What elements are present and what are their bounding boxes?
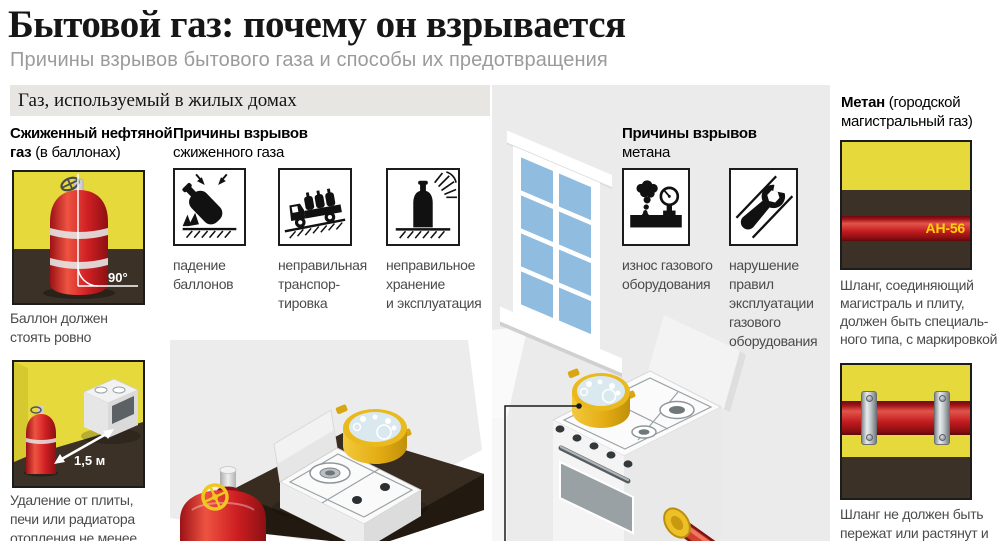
lpg-heading: Сжиженный нефтяной газ (в баллонах) bbox=[10, 124, 172, 162]
screw-icon bbox=[939, 434, 946, 441]
hose-marking-caption: Шланг, соединяющий магистраль и плиту, д… bbox=[840, 276, 997, 348]
lpg-cause-caption-1: падение баллонов bbox=[173, 256, 233, 294]
lpg-cause-caption-3: неправильное хранение и эксплуатация bbox=[386, 256, 481, 313]
boiling-pot-icon bbox=[567, 368, 636, 428]
screw-icon bbox=[866, 434, 873, 441]
caption-line: Баллон должен bbox=[10, 309, 108, 328]
lpg-causes-heading: Причины взрывов сжиженного газа bbox=[173, 124, 308, 162]
caption-line: печи или радиатора bbox=[10, 510, 137, 529]
hose-bracket-icon bbox=[861, 391, 877, 445]
page-subtitle: Причины взрывов бытового газа и способы … bbox=[10, 49, 608, 72]
methane-causes-heading: Причины взрывов метана bbox=[622, 124, 757, 162]
lpg-cause-caption-2: неправильная транспор- тировка bbox=[278, 256, 367, 313]
caption-line: хранение bbox=[386, 275, 481, 294]
cylinder-distance-figure: 1,5 м bbox=[12, 360, 145, 488]
methane-cause-caption-1: износ газового оборудования bbox=[622, 256, 713, 294]
hose-marking-figure: АН-56 bbox=[840, 140, 972, 270]
hose-bracket-icon bbox=[934, 391, 950, 445]
caption-line: должен быть специаль- bbox=[840, 312, 997, 330]
caption-line: неправильная bbox=[278, 256, 367, 275]
falling-cylinder-pictogram bbox=[173, 168, 246, 246]
caption-line: газового bbox=[729, 313, 817, 332]
upright-cylinder-figure: 90° bbox=[12, 170, 145, 305]
caption-line: пережат или растянут и bbox=[840, 524, 988, 541]
lpg-distance-caption: Удаление от плиты, печи или радиатора от… bbox=[10, 491, 137, 541]
section-band: Газ, используемый в жилых домах bbox=[10, 85, 490, 116]
screw-icon bbox=[939, 395, 946, 402]
hose-mount-figure bbox=[840, 363, 972, 500]
sun-heat-storage-pictogram bbox=[386, 168, 460, 246]
caption-line: Удаление от плиты, bbox=[10, 491, 137, 510]
screw-icon bbox=[866, 395, 873, 402]
caption-line: оборудования bbox=[622, 275, 713, 294]
tabletop-stove-scene-illustration bbox=[170, 340, 492, 541]
methane-cause-caption-2: нарушение правил эксплуатации газового о… bbox=[729, 256, 817, 351]
caption-line: тировка bbox=[278, 294, 367, 313]
methane-heading: Метан (городской магистральный газ) bbox=[841, 93, 973, 131]
caption-line: ного типа, с маркировкой bbox=[840, 330, 997, 348]
caption-line: эксплуатации bbox=[729, 294, 817, 313]
floor-area bbox=[842, 457, 970, 498]
caption-line: оборудования bbox=[729, 332, 817, 351]
truck-transport-icon bbox=[280, 170, 350, 244]
truck-transport-pictogram bbox=[278, 168, 352, 246]
wrench-pictogram bbox=[729, 168, 798, 246]
caption-line: и эксплуатация bbox=[386, 294, 481, 313]
caption-line: износ газового bbox=[622, 256, 713, 275]
angle-label: 90° bbox=[108, 270, 128, 285]
caption-line: баллонов bbox=[173, 275, 233, 294]
caption-line: правил bbox=[729, 275, 817, 294]
infographic-root: Бытовой газ: почему он взрывается Причин… bbox=[0, 0, 1000, 541]
caption-line: отопления не менее bbox=[10, 529, 137, 541]
falling-cylinder-icon bbox=[175, 170, 244, 244]
hose-marking-label: АН-56 bbox=[926, 220, 965, 236]
caption-line: падение bbox=[173, 256, 233, 275]
upright-cylinder-icon: 90° bbox=[14, 172, 143, 303]
caption-line: неправильное bbox=[386, 256, 481, 275]
lpg-upright-caption: Баллон должен стоять ровно bbox=[10, 309, 108, 347]
caption-line: Шланг не должен быть bbox=[840, 505, 988, 524]
page-title: Бытовой газ: почему он взрывается bbox=[8, 2, 626, 47]
mini-cylinder-icon bbox=[24, 406, 58, 477]
caption-line: магистраль и плиту, bbox=[840, 294, 997, 312]
caption-line: нарушение bbox=[729, 256, 817, 275]
gas-leak-gauge-icon bbox=[624, 170, 688, 244]
gas-leak-pictogram bbox=[622, 168, 690, 246]
distance-label: 1,5 м bbox=[74, 453, 105, 468]
caption-line: стоять ровно bbox=[10, 328, 108, 347]
sun-heat-storage-icon bbox=[388, 170, 458, 244]
cylinder-distance-icon: 1,5 м bbox=[14, 362, 143, 486]
wrench-icon bbox=[731, 170, 796, 244]
section-band-label: Газ, используемый в жилых домах bbox=[18, 85, 297, 116]
caption-line: Шланг, соединяющий bbox=[840, 276, 997, 294]
hose-mount-caption: Шланг не должен быть пережат или растяну… bbox=[840, 505, 988, 541]
caption-line: транспор- bbox=[278, 275, 367, 294]
